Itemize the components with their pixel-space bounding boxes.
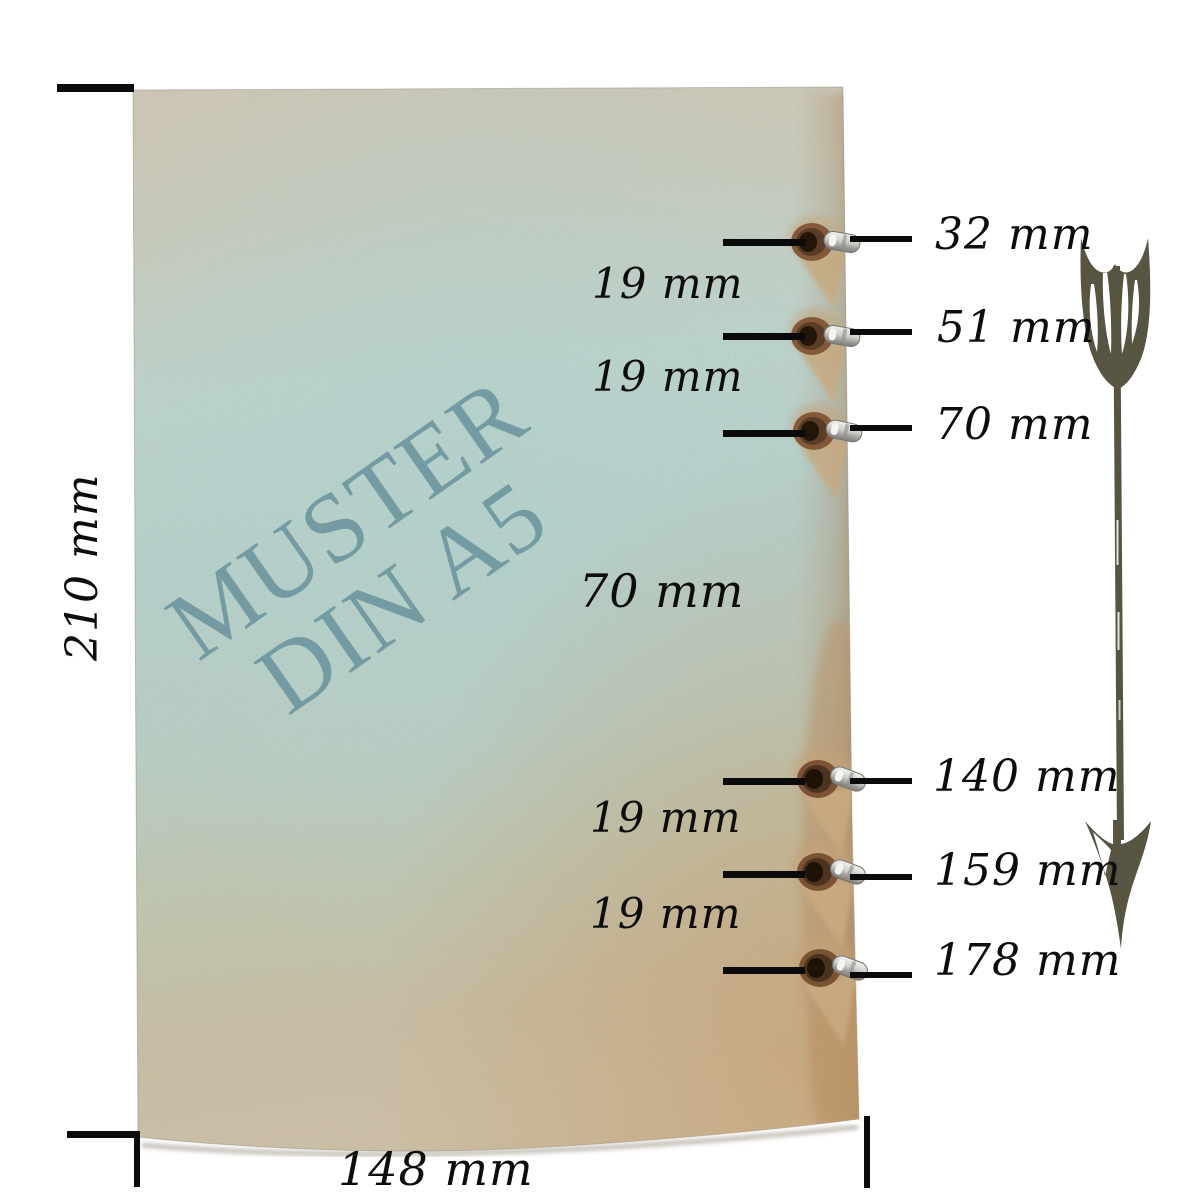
- hole-position-label-2: 51 mm: [937, 306, 1095, 350]
- hole-position-label-3: 70 mm: [935, 403, 1093, 447]
- hole-position-label-4: 140 mm: [933, 755, 1120, 799]
- spacing-label-2: 19 mm: [592, 356, 743, 398]
- eyelet-hole-5: [797, 853, 868, 891]
- tick-bottom-left-horizontal: [67, 1131, 137, 1138]
- leader-line-hole-5-right: [850, 874, 912, 880]
- spacing-label-center: 70 mm: [579, 568, 744, 614]
- spacing-label-1: 19 mm: [592, 263, 743, 305]
- leader-line-hole-1-left: [723, 239, 805, 246]
- leader-line-hole-6-right: [850, 972, 912, 978]
- leader-line-hole-1-right: [850, 236, 912, 242]
- leader-line-hole-2-right: [850, 329, 912, 335]
- tick-bottom-left-vertical: [134, 1131, 140, 1187]
- leader-line-hole-2-left: [723, 333, 805, 340]
- tick-bottom-right: [864, 1116, 870, 1188]
- hole-position-label-1: 32 mm: [935, 213, 1093, 257]
- leader-line-hole-6-left: [723, 967, 805, 974]
- tick-top-left: [57, 84, 134, 92]
- hole-position-label-5: 159 mm: [934, 849, 1121, 893]
- spacing-label-3: 19 mm: [590, 797, 741, 839]
- spacing-label-4: 19 mm: [590, 893, 741, 935]
- leader-line-hole-4-left: [723, 778, 805, 785]
- leader-line-hole-5-left: [723, 871, 805, 878]
- paper-height-label: 210 mm: [61, 511, 105, 661]
- leader-line-hole-3-right: [850, 425, 912, 431]
- leader-line-hole-3-left: [723, 430, 805, 437]
- leader-line-hole-4-right: [850, 778, 912, 784]
- paper-width-label: 148 mm: [338, 1146, 498, 1192]
- hole-position-label-6: 178 mm: [934, 939, 1121, 983]
- eyelet-hole-6: [799, 949, 870, 987]
- measurement-diagram: MUSTER DIN A5 32 mm 51 mm 70 mm 140 mm 1…: [0, 0, 1200, 1200]
